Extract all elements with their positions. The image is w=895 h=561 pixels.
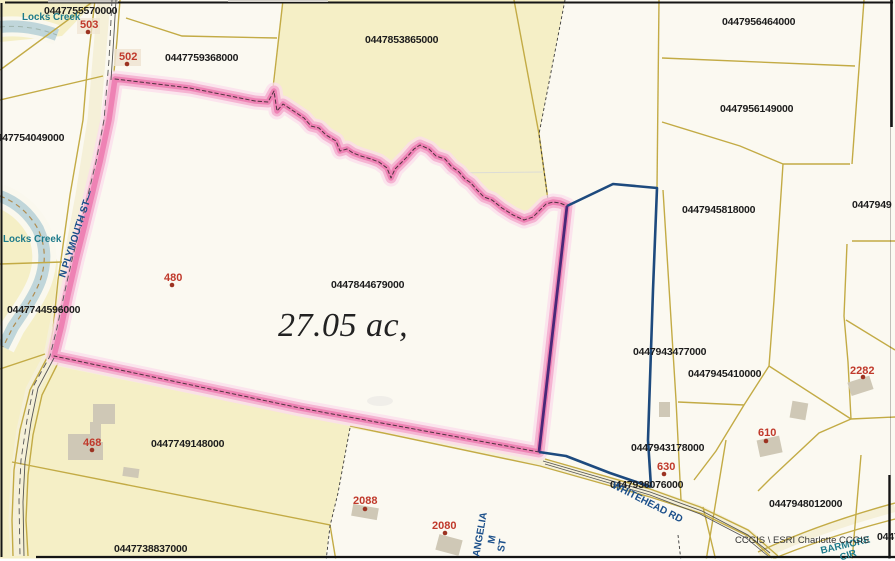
svg-text:Locks Creek: Locks Creek [3, 234, 62, 245]
svg-text:0447844679000: 0447844679000 [331, 279, 405, 291]
svg-text:610: 610 [758, 427, 776, 439]
svg-text:503: 503 [80, 19, 98, 31]
svg-text:0447943178000: 0447943178000 [631, 442, 705, 454]
svg-text:27.05 ac,: 27.05 ac, [278, 307, 408, 344]
svg-text:0447945410000: 0447945410000 [688, 368, 762, 380]
svg-text:CCGIS \ ESRI Charlotte CCGIS: CCGIS \ ESRI Charlotte CCGIS [735, 535, 869, 546]
svg-text:630: 630 [657, 461, 675, 473]
svg-text:0447956464000: 0447956464000 [722, 16, 796, 28]
svg-text:0447945818000: 0447945818000 [682, 204, 756, 216]
svg-text:0447948012000: 0447948012000 [769, 498, 843, 510]
svg-text:Locks Creek: Locks Creek [22, 12, 81, 23]
svg-text:2080: 2080 [432, 520, 456, 532]
svg-text:0447853865000: 0447853865000 [365, 34, 439, 46]
svg-text:0447749148000: 0447749148000 [151, 438, 225, 450]
svg-text:0447759368000: 0447759368000 [165, 52, 239, 64]
svg-text:0447956149000: 0447956149000 [720, 103, 794, 115]
svg-text:480: 480 [164, 272, 182, 284]
svg-text:0447943477000: 0447943477000 [633, 346, 707, 358]
svg-text:0447744596000: 0447744596000 [7, 304, 81, 316]
svg-text:0447738837000: 0447738837000 [114, 543, 188, 555]
svg-text:468: 468 [83, 437, 101, 449]
svg-text:0447754049000: 0447754049000 [0, 132, 65, 144]
svg-text:ST: ST [496, 538, 509, 552]
svg-text:0447: 0447 [877, 531, 895, 543]
svg-text:2088: 2088 [353, 495, 377, 507]
svg-text:0447949: 0447949 [852, 199, 892, 211]
svg-text:502: 502 [119, 51, 137, 63]
